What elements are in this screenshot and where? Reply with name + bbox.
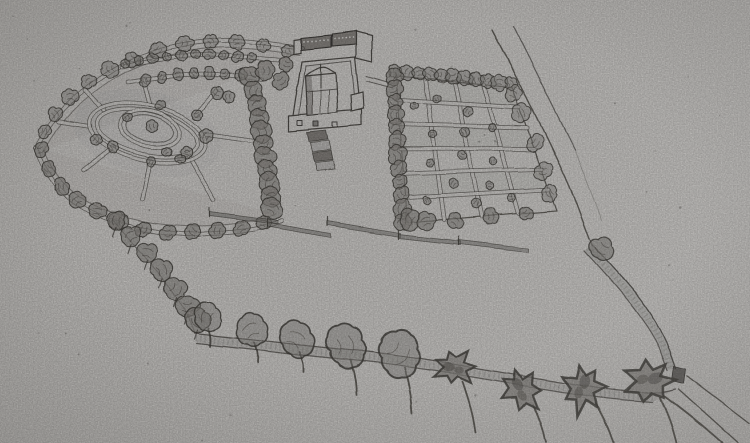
photo-sheen [0, 0, 750, 443]
estate-plan-drawing [0, 0, 750, 443]
site-plan-photo: Black-and-white photograph of a hand-dra… [0, 0, 750, 443]
